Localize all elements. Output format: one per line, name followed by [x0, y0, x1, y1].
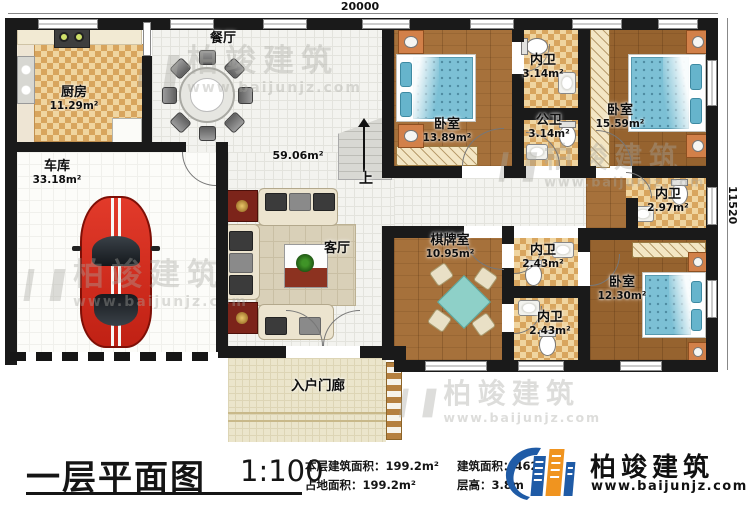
wall — [394, 166, 462, 178]
wall — [560, 166, 596, 178]
corridor-wood-floor — [586, 178, 626, 228]
room-name: 厨房 — [61, 86, 87, 101]
room-area: 2.43m² — [522, 259, 563, 271]
dimension-top: 20000 — [300, 0, 420, 13]
room-label-bedroom-tr: 卧室 15.59m² — [596, 104, 645, 130]
corridor-floor — [394, 178, 586, 226]
room-area: 15.59m² — [596, 119, 645, 131]
dining-table — [179, 67, 235, 123]
wall — [5, 18, 17, 365]
watermark-logo-icon — [399, 389, 437, 418]
room-name: 内卫 — [530, 54, 556, 69]
wall — [216, 142, 228, 352]
room-label-bath-mid1: 内卫 2.43m² — [522, 244, 563, 270]
room-area: 10.95m² — [426, 249, 475, 261]
room-label-bath-public: 公卫 3.14m² — [528, 114, 569, 140]
room-name: 餐厅 — [210, 32, 236, 47]
sofa — [224, 224, 260, 300]
room-name: 内卫 — [537, 311, 563, 326]
room-area: 59.06m² — [272, 150, 323, 162]
room-area: 3.14m² — [528, 129, 569, 141]
window — [572, 19, 622, 29]
room-name: 卧室 — [434, 118, 460, 133]
wall — [512, 74, 524, 178]
room-name: 内卫 — [655, 188, 681, 203]
stairs-arrow — [363, 126, 365, 172]
wall — [5, 142, 186, 152]
room-label-bath-right: 内卫 2.97m² — [647, 188, 688, 214]
room-area: 2.43m² — [529, 326, 570, 338]
wall — [394, 346, 406, 372]
window — [518, 361, 564, 371]
car-windshield — [92, 236, 140, 266]
room-name: 棋牌室 — [430, 234, 469, 249]
room-area: 11.29m² — [50, 101, 99, 113]
window — [707, 280, 717, 318]
dimension-line-top — [8, 13, 718, 14]
bed — [396, 54, 476, 122]
plant — [296, 254, 314, 272]
nightstand — [688, 342, 708, 362]
stairs-arrow-head — [358, 118, 370, 127]
porch-line — [228, 420, 386, 422]
brand-url: www.baijunjz.com — [591, 479, 748, 494]
room-name: 内卫 — [530, 244, 556, 259]
room-label-chess: 棋牌室 10.95m² — [426, 234, 475, 260]
room-label-bedroom-tl: 卧室 13.89m² — [423, 118, 472, 144]
brand-logo-icon — [497, 444, 585, 504]
nightstand — [398, 30, 424, 54]
room-name: 卧室 — [609, 276, 635, 291]
dimension-right: 11520 — [726, 186, 739, 224]
wall — [504, 166, 526, 178]
stat-footprint-area: 占地面积：199.2m² — [305, 477, 416, 493]
room-name: 车库 — [44, 160, 70, 175]
end-table — [226, 190, 258, 222]
window — [707, 60, 717, 106]
stove — [54, 27, 90, 48]
room-area: 33.18m² — [33, 175, 82, 187]
burner-icon — [59, 32, 69, 42]
room-label-porch: 入户门廊 — [291, 379, 345, 394]
window — [658, 19, 698, 29]
window — [170, 19, 214, 29]
dining-chair — [238, 87, 253, 104]
room-label-garage: 车库 33.18m² — [33, 160, 82, 186]
wall — [626, 198, 638, 230]
wall — [632, 166, 718, 178]
entry-steps — [386, 362, 402, 440]
burner-icon — [74, 32, 84, 42]
window — [425, 361, 487, 371]
kitchen-sink — [17, 56, 35, 104]
stat-floor-area: 本层建筑面积：199.2m² — [305, 458, 439, 474]
window — [620, 361, 662, 371]
car-mirror — [72, 246, 81, 251]
watermark: 柏竣建筑www.baijunjz.com — [401, 381, 601, 426]
wall — [382, 238, 394, 360]
room-label-dining: 餐厅 — [210, 32, 236, 47]
garage-door — [10, 352, 218, 361]
nightstand — [688, 252, 708, 272]
porch-line — [228, 412, 386, 414]
dining-chair — [199, 126, 216, 141]
room-label-hall-area: 59.06m² — [272, 150, 323, 162]
room-label-bath-mid2: 内卫 2.43m² — [529, 311, 570, 337]
window — [470, 19, 514, 29]
wall — [578, 286, 590, 360]
wall — [142, 56, 152, 152]
door-leaf — [143, 22, 151, 56]
bed — [642, 272, 706, 338]
nightstand — [398, 124, 424, 148]
dining-chair — [162, 87, 177, 104]
room-name: 客厅 — [324, 242, 350, 257]
toilet-tank — [671, 179, 688, 186]
room-area: 13.89m² — [423, 133, 472, 145]
room-name: 卧室 — [607, 104, 633, 119]
wall — [382, 18, 394, 178]
title-underline — [26, 492, 302, 495]
room-area: 12.30m² — [598, 291, 647, 303]
room-name: 公卫 — [536, 114, 562, 129]
wall — [578, 228, 718, 240]
dining-chair — [199, 50, 216, 65]
room-label-bedroom-br: 卧室 12.30m² — [598, 276, 647, 302]
floor-plan-page: 20000 11520 — [0, 0, 750, 508]
car-mirror — [151, 246, 160, 251]
toilet — [539, 334, 556, 356]
room-label-living: 客厅 — [324, 242, 350, 257]
window — [38, 19, 98, 29]
room-area: 3.14m² — [522, 69, 563, 81]
window — [707, 187, 717, 225]
car-rear-window — [94, 294, 138, 326]
porch-floor — [228, 358, 386, 442]
wall — [502, 226, 514, 238]
room-area: 2.97m² — [647, 203, 688, 215]
wall — [502, 332, 514, 360]
wall — [578, 240, 590, 252]
wall — [502, 286, 578, 298]
window — [263, 19, 307, 29]
end-table — [226, 302, 258, 334]
window — [362, 19, 410, 29]
sofa — [258, 188, 338, 226]
room-label-bath-top: 内卫 3.14m² — [522, 54, 563, 80]
stairs-up-label: 上 — [359, 172, 373, 188]
wall — [578, 18, 590, 178]
room-label-kitchen: 厨房 11.29m² — [50, 86, 99, 112]
room-name: 入户门廊 — [291, 379, 345, 394]
